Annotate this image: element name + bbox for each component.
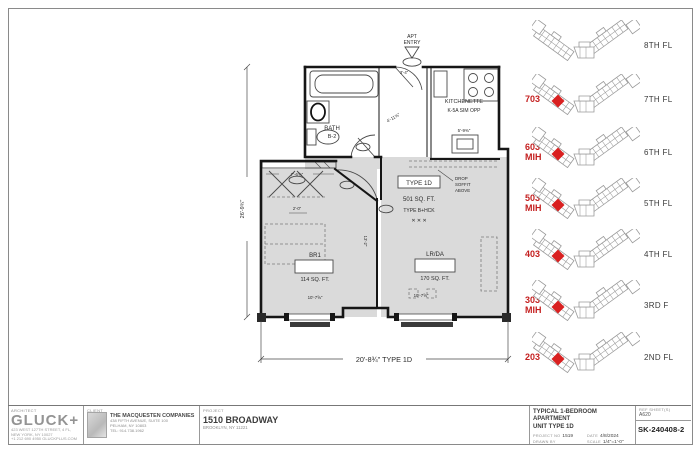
date-label: DATE xyxy=(587,434,598,438)
client-address-3: TEL: 914.738.1962 xyxy=(110,429,194,434)
project-label: PROJECT xyxy=(203,408,526,413)
dim-bedroom-width: 10'-7⅝" xyxy=(308,295,323,300)
sheet-title-cell: TYPICAL 1-BEDROOM APARTMENT UNIT TYPE 1D… xyxy=(530,406,636,444)
key-plan-row-3rd-fl: 303 MIH 3RD F xyxy=(524,280,694,330)
key-plan-row-6th-fl: 603 MIH 6TH FL xyxy=(524,127,694,177)
kitchen-label: KITCHENETTE xyxy=(445,99,484,105)
key-plan-row-2nd-fl: 203 2ND FL xyxy=(524,332,694,382)
floor-label: 7TH FL xyxy=(644,74,672,124)
sheet-number: SK-240408-2 xyxy=(636,421,691,438)
key-plan-row-7th-fl: 703 7TH FL xyxy=(524,74,694,124)
soffit-note-1: DROP xyxy=(455,176,468,181)
scale-value: 1/4"=1'-0" xyxy=(603,440,624,445)
floor-label: 8TH FL xyxy=(644,20,672,70)
client-cell: CLIENT THE MACQUESTEN COMPANIES 438 FIFT… xyxy=(84,406,200,444)
soffit-note-2: SOFFIT xyxy=(455,182,471,187)
project-cell: PROJECT 1510 BROADWAY BROOKLYN, NY 11221 xyxy=(200,406,530,444)
dim-hall-width: 3'-4" xyxy=(400,70,409,75)
dim-closet: 7'-6⅝" xyxy=(291,172,304,177)
dim-hall-length: 13'-2" xyxy=(363,236,368,247)
dim-bath-door: 2'-0" xyxy=(293,206,302,211)
kitchen-dim: 5'-9⅜" xyxy=(458,128,471,133)
entry-symbol: APT ENTRY xyxy=(404,34,422,58)
floor-label: 5TH FL xyxy=(644,178,672,228)
client-label: CLIENT xyxy=(87,408,103,413)
key-plan-row-4th-fl: 403 4TH FL xyxy=(524,229,694,279)
date-value: 4/8/2024 xyxy=(600,434,619,439)
ref-sheet-value: A620 xyxy=(639,412,688,418)
unit-area-label: 501 SQ. FT. xyxy=(403,197,435,203)
unit-prior-type: TYPE B+HCK xyxy=(403,208,435,214)
drawn-by-label: DRAWN BY xyxy=(533,440,556,444)
soffit-note-3: ABOVE xyxy=(455,188,470,193)
dim-overall-width: 20'-8¾" TYPE 1D xyxy=(356,355,412,364)
dim-overall-height: 26'-9¾" xyxy=(240,200,246,219)
key-plan-4th xyxy=(532,229,640,279)
key-plan-3rd xyxy=(532,280,640,330)
key-plan-8th xyxy=(532,20,640,70)
scale-label: SCALE xyxy=(587,440,601,444)
sheet-number-cell: REF SHEET(S) A620 SK-240408-2 xyxy=(636,406,691,444)
entry-label-2: ENTRY xyxy=(404,40,422,46)
project-address: BROOKLYN, NY 11221 xyxy=(203,425,526,430)
sheet-title-line-1: TYPICAL 1-BEDROOM APARTMENT xyxy=(533,409,632,423)
unit-type-label: TYPE 1D xyxy=(406,180,432,187)
floor-plan: APT ENTRY BATH B-2 KITCHENETTE K-5A SIM … xyxy=(231,29,513,391)
client-building-photo xyxy=(87,412,107,438)
project-no-label: PROJECT NO xyxy=(533,434,560,438)
kitchen-spec: K-5A SIM OPP xyxy=(447,108,481,114)
floor-label: 3RD F xyxy=(644,280,669,330)
key-plan-7th xyxy=(532,74,640,124)
title-block: ARCHITECT GLUCK+ 423 WEST 127TH STREET, … xyxy=(8,405,691,444)
floor-label: 6TH FL xyxy=(644,127,672,177)
dim-entry-depth: 4'-11⅝" xyxy=(386,112,401,124)
key-plan-row-5th-fl: 503 MIH 5TH FL xyxy=(524,178,694,228)
bath-number: B-2 xyxy=(328,134,337,140)
living-area: 170 SQ. FT. xyxy=(420,276,450,282)
bedroom-area: 114 SQ. FT. xyxy=(301,277,330,283)
key-plan-2nd xyxy=(532,332,640,382)
key-plan-5th xyxy=(532,178,640,228)
floor-label: 4TH FL xyxy=(644,229,672,279)
dim-living-width: 10'-7⅝" xyxy=(414,293,429,298)
architect-cell: ARCHITECT GLUCK+ 423 WEST 127TH STREET, … xyxy=(8,406,84,444)
key-plan-column: 8TH FL 703 7TH FL 603 MIH 6TH FL xyxy=(524,12,694,398)
floor-label: 2ND FL xyxy=(644,332,673,382)
project-no-value: 1519 xyxy=(562,434,573,439)
key-plan-6th xyxy=(532,127,640,177)
sheet-meta: PROJECT NO1519 DATE4/8/2024 DRAWN BY SCA… xyxy=(533,434,632,445)
key-plan-row-8th-fl: 8TH FL xyxy=(524,20,694,70)
architect-address-2: +1 212 690 4950 GLUCKPLUS.COM xyxy=(11,437,80,442)
living-label: LR/DA xyxy=(426,252,444,258)
project-name: 1510 BROADWAY xyxy=(203,415,526,425)
bath-label: BATH xyxy=(324,126,340,132)
gluck-logo: GLUCK+ xyxy=(11,413,80,428)
sheet-title-line-2: UNIT TYPE 1D xyxy=(533,424,632,431)
bedroom-label: BR1 xyxy=(309,253,321,259)
svg-text:✕ ✕ ✕: ✕ ✕ ✕ xyxy=(411,218,426,224)
drawing-sheet: APT ENTRY BATH B-2 KITCHENETTE K-5A SIM … xyxy=(0,0,700,452)
